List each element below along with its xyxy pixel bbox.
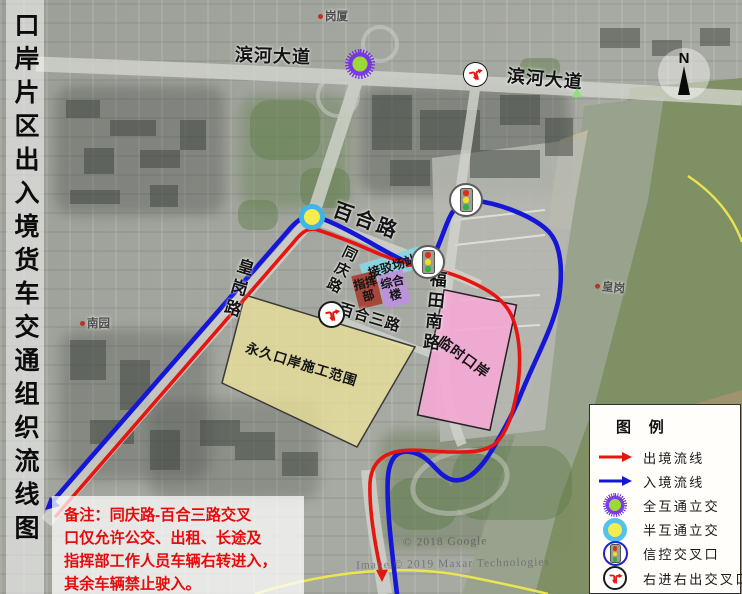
place-dot-icon xyxy=(80,321,85,326)
signal-intersection-icon xyxy=(596,541,634,566)
legend-item-signal-intersection: 信控交叉口 xyxy=(590,542,740,566)
map: 滨河大道 滨河大道 百合路 同庆路 皇岗路 福田南路 百合三路 永久口岸施工范围… xyxy=(0,0,742,594)
exit-flow-arrow-icon xyxy=(596,451,634,463)
legend: 图 例 出境流线 入境流线 全互通立交 半互通立交 信控交叉口 xyxy=(589,404,741,594)
entry-flow-arrow-icon xyxy=(596,475,634,487)
legend-item-exit-flow: 出境流线 xyxy=(590,445,740,469)
legend-label: 全互通立交 xyxy=(643,496,720,515)
legend-item-full-interchange: 全互通立交 xyxy=(590,493,740,517)
legend-label: 出境流线 xyxy=(643,448,705,467)
signal-intersection-icon-south xyxy=(411,245,445,279)
legend-item-entry-flow: 入境流线 xyxy=(590,469,740,493)
note-line: 指挥部工作人员车辆右转进入， xyxy=(64,550,294,573)
legend-item-right-in-right-out: 右进右出交叉口 xyxy=(590,566,740,590)
traffic-light-icon xyxy=(460,188,473,212)
legend-item-half-interchange: 半互通立交 xyxy=(590,518,740,542)
legend-label: 右进右出交叉口 xyxy=(643,569,742,588)
green-marker-icon xyxy=(572,88,582,97)
legend-label: 信控交叉口 xyxy=(643,544,720,563)
signal-intersection-icon-north xyxy=(449,183,483,217)
north-label: N xyxy=(679,51,690,66)
north-arrow-icon xyxy=(678,66,690,95)
legend-title: 图 例 xyxy=(616,416,740,437)
title-strip: 口岸片区出入境货车交通组织流线图 xyxy=(6,0,44,594)
place-label-nanyuan: 南园 xyxy=(80,315,110,331)
north-compass: N xyxy=(658,48,710,100)
note-line: 其余车辆禁止驶入。 xyxy=(64,573,294,594)
right-in-right-out-icon xyxy=(596,566,634,590)
turn-arrows-icon xyxy=(465,64,486,85)
place-label-gangxia: 岗厦 xyxy=(318,8,348,24)
google-watermark: © 2018 Google xyxy=(403,535,488,548)
full-interchange-icon xyxy=(596,493,634,517)
traffic-light-icon xyxy=(422,250,435,274)
legend-label: 半互通立交 xyxy=(643,520,720,539)
note-line: 口仅允许公交、出租、长途及 xyxy=(64,527,294,550)
half-interchange-icon xyxy=(299,204,325,230)
place-dot-icon xyxy=(318,14,323,19)
legend-label: 入境流线 xyxy=(643,472,705,491)
place-label-huanggang: 皇岗 xyxy=(594,277,626,296)
page-title: 口岸片区出入境货车交通组织流线图 xyxy=(6,0,44,594)
half-interchange-icon xyxy=(596,518,634,542)
note-line: 备注：同庆路-百合三路交叉 xyxy=(64,504,294,527)
turn-arrows-icon xyxy=(321,304,342,325)
place-dot-icon xyxy=(595,284,600,289)
note-box: 备注：同庆路-百合三路交叉 口仅允许公交、出租、长途及 指挥部工作人员车辆右转进… xyxy=(52,496,304,594)
full-interchange-icon xyxy=(345,49,375,79)
road-label-binhe-west: 滨河大道 xyxy=(235,41,312,70)
